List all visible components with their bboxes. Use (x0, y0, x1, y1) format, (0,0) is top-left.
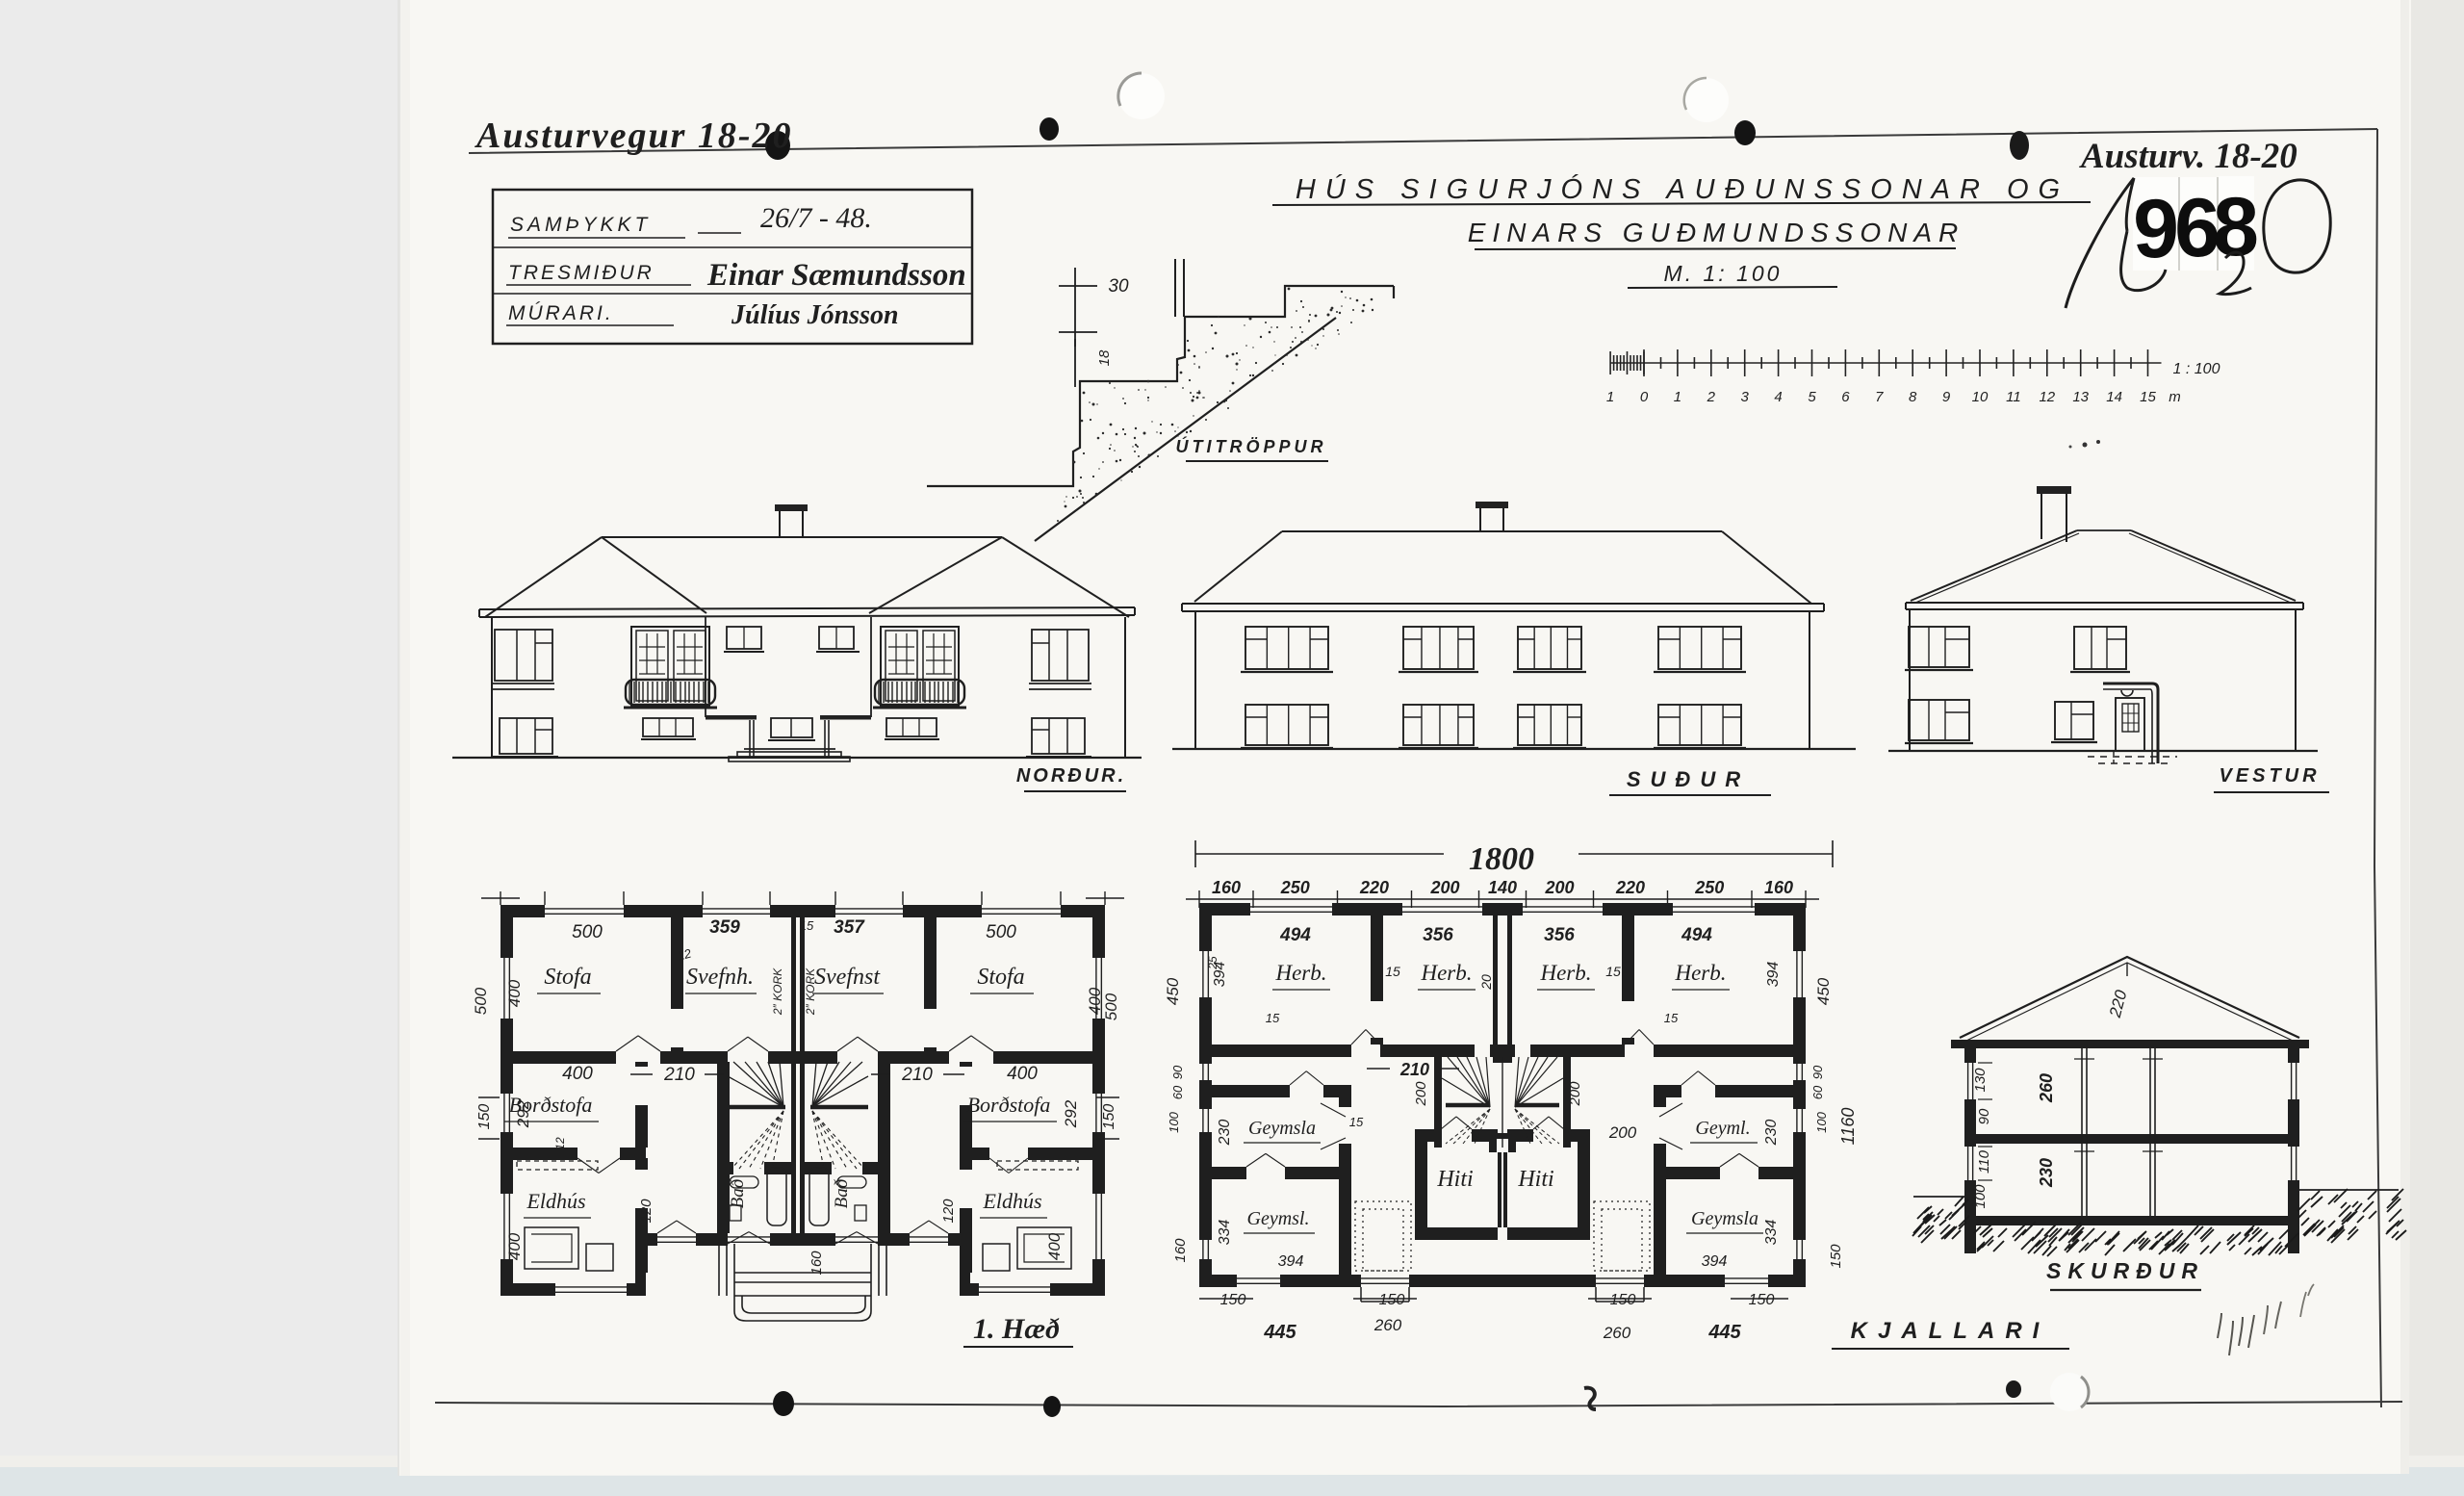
svg-text:ÚTITRÖPPUR: ÚTITRÖPPUR (1176, 436, 1327, 456)
svg-text:EINARS GUÐMUNDSSONAR: EINARS GUÐMUNDSSONAR (1468, 218, 1964, 247)
svg-text:400: 400 (1045, 1232, 1064, 1260)
svg-text:150: 150 (1101, 1104, 1117, 1130)
svg-text:Geyml.: Geyml. (1695, 1118, 1750, 1139)
svg-text:11: 11 (2006, 389, 2021, 405)
svg-text:Geymsla: Geymsla (1248, 1118, 1316, 1139)
svg-text:Herb.: Herb. (1420, 961, 1472, 985)
svg-text:5: 5 (1808, 389, 1816, 405)
svg-text:13: 13 (2072, 389, 2089, 405)
svg-text:Svefnh.: Svefnh. (686, 965, 754, 990)
svg-text:8: 8 (2213, 181, 2259, 273)
svg-text:210: 210 (901, 1065, 933, 1085)
svg-text:150: 150 (1610, 1292, 1636, 1308)
svg-text:VESTUR: VESTUR (2219, 765, 2320, 787)
svg-text:m: m (2169, 389, 2181, 405)
svg-text:150: 150 (1379, 1292, 1405, 1308)
svg-text:160: 160 (1764, 878, 1793, 897)
svg-text:100: 100 (1972, 1184, 1989, 1209)
svg-text:1. Hæð: 1. Hæð (973, 1313, 1060, 1345)
svg-text:200: 200 (1608, 1123, 1637, 1142)
svg-text:Stofa: Stofa (544, 965, 591, 990)
svg-text:15: 15 (2140, 389, 2156, 405)
svg-text:2: 2 (1707, 389, 1716, 405)
svg-text:Svefnst: Svefnst (814, 965, 881, 990)
svg-text:120: 120 (638, 1199, 654, 1224)
svg-text:250: 250 (1280, 878, 1310, 897)
svg-text:160: 160 (808, 1251, 825, 1276)
svg-text:356: 356 (1544, 925, 1575, 945)
svg-text:210: 210 (1399, 1060, 1429, 1079)
svg-text:M. 1: 100: M. 1: 100 (1664, 261, 1783, 286)
svg-text:2″ KORK: 2″ KORK (771, 967, 784, 1016)
svg-text:260: 260 (1373, 1316, 1402, 1334)
svg-text:Eldhús: Eldhús (526, 1189, 585, 1213)
svg-text:12: 12 (553, 1137, 567, 1150)
svg-text:400: 400 (1007, 1064, 1038, 1084)
svg-text:494: 494 (1681, 925, 1712, 945)
svg-text:500: 500 (1102, 993, 1120, 1020)
svg-text:357: 357 (834, 917, 865, 938)
svg-text:400: 400 (505, 1232, 524, 1260)
svg-text:12: 12 (2039, 389, 2055, 405)
svg-text:260: 260 (2037, 1073, 2056, 1103)
svg-text:150: 150 (1749, 1292, 1775, 1308)
svg-text:1160: 1160 (1838, 1108, 1858, 1146)
svg-text:Hiti: Hiti (1436, 1167, 1473, 1192)
svg-text:Einar Sæmundsson: Einar Sæmundsson (706, 258, 966, 293)
svg-text:356: 356 (1423, 925, 1453, 945)
svg-text:494: 494 (1279, 925, 1311, 945)
svg-text:500: 500 (472, 987, 490, 1015)
svg-text:140: 140 (1488, 878, 1517, 897)
svg-text:SAMÞYKKT: SAMÞYKKT (510, 214, 651, 236)
svg-text:200: 200 (1567, 1081, 1583, 1107)
svg-text:210: 210 (663, 1065, 695, 1085)
svg-text:Hiti: Hiti (1517, 1167, 1553, 1192)
svg-text:230: 230 (1763, 1120, 1780, 1147)
svg-text:15: 15 (1349, 1115, 1364, 1129)
svg-text:445: 445 (1707, 1322, 1741, 1343)
svg-text:334: 334 (1763, 1220, 1780, 1246)
svg-text:120: 120 (940, 1199, 957, 1224)
svg-text:150: 150 (476, 1104, 493, 1130)
svg-text:450: 450 (1164, 977, 1182, 1005)
svg-text:15: 15 (1664, 1011, 1679, 1025)
svg-text:200: 200 (1413, 1081, 1429, 1107)
svg-text:130: 130 (1972, 1068, 1989, 1093)
svg-text:500: 500 (986, 922, 1016, 942)
svg-text:500: 500 (572, 922, 603, 942)
svg-text:1: 1 (1674, 389, 1681, 405)
svg-text:Bað: Bað (832, 1178, 852, 1208)
svg-text:9: 9 (1942, 389, 1951, 405)
svg-text:1: 1 (1606, 389, 1614, 405)
svg-text:MÚRARI.: MÚRARI. (508, 302, 614, 324)
svg-text:18: 18 (1096, 349, 1113, 366)
svg-text:400: 400 (505, 979, 524, 1007)
svg-text:250: 250 (1694, 878, 1724, 897)
svg-text:110: 110 (1976, 1149, 1992, 1174)
svg-text:Herb.: Herb. (1539, 961, 1591, 985)
svg-text:SKURÐUR: SKURÐUR (2046, 1258, 2204, 1283)
svg-text:15: 15 (1266, 1011, 1280, 1025)
svg-text:10: 10 (1972, 389, 1989, 405)
svg-text:Geymsla: Geymsla (1691, 1208, 1758, 1229)
svg-text:394: 394 (1278, 1253, 1304, 1270)
svg-text:150: 150 (1220, 1292, 1246, 1308)
svg-text:14: 14 (2106, 389, 2122, 405)
svg-text:160: 160 (1172, 1238, 1189, 1263)
svg-text:60: 60 (1170, 1085, 1185, 1099)
svg-text:Borðstofa: Borðstofa (967, 1093, 1051, 1117)
svg-text:334: 334 (1217, 1220, 1233, 1246)
svg-text:394: 394 (1765, 962, 1782, 988)
svg-text:Borðstofa: Borðstofa (509, 1093, 593, 1117)
svg-text:160: 160 (1212, 878, 1241, 897)
svg-text:292: 292 (1062, 1099, 1080, 1128)
svg-text:15: 15 (1385, 964, 1400, 979)
svg-text:26/7 - 48.: 26/7 - 48. (760, 202, 872, 234)
svg-text:230: 230 (1217, 1120, 1233, 1147)
svg-text:7: 7 (1875, 389, 1884, 405)
svg-text:0: 0 (1640, 389, 1649, 405)
svg-text:6: 6 (1841, 389, 1850, 405)
svg-text:Geymsl.: Geymsl. (1247, 1208, 1310, 1229)
svg-text:90: 90 (1170, 1065, 1185, 1079)
svg-text:20: 20 (1478, 974, 1494, 991)
svg-text:KJALLARI: KJALLARI (1851, 1318, 2050, 1344)
svg-text:Eldhús: Eldhús (982, 1189, 1041, 1213)
svg-text:100: 100 (1167, 1111, 1181, 1132)
svg-text:1800: 1800 (1469, 841, 1534, 877)
svg-text:Austurv. 18-20: Austurv. 18-20 (2079, 137, 2297, 176)
svg-text:Herb.: Herb. (1674, 961, 1726, 985)
svg-text:NORÐUR.: NORÐUR. (1016, 765, 1126, 787)
svg-text:200: 200 (1429, 878, 1459, 897)
svg-text:25: 25 (1206, 956, 1219, 970)
svg-text:100: 100 (1814, 1111, 1829, 1132)
svg-text:260: 260 (1603, 1324, 1631, 1342)
svg-text:60: 60 (1810, 1085, 1825, 1099)
svg-text:Stofa: Stofa (977, 965, 1024, 990)
svg-text:394: 394 (1702, 1253, 1728, 1270)
svg-text:400: 400 (562, 1064, 593, 1084)
svg-text:15: 15 (800, 918, 814, 933)
svg-text:220: 220 (1359, 878, 1389, 897)
svg-text:Bað: Bað (728, 1178, 748, 1208)
svg-text:3: 3 (1741, 389, 1750, 405)
svg-text:1 : 100: 1 : 100 (2173, 361, 2220, 377)
svg-text:150: 150 (1828, 1244, 1844, 1269)
svg-text:220: 220 (1615, 878, 1645, 897)
svg-text:445: 445 (1263, 1322, 1296, 1343)
svg-text:90: 90 (1810, 1065, 1825, 1079)
svg-text:90: 90 (1976, 1108, 1992, 1124)
svg-text:8: 8 (1909, 389, 1917, 405)
svg-text:230: 230 (2037, 1158, 2056, 1188)
svg-text:4: 4 (1774, 389, 1782, 405)
svg-text:200: 200 (1544, 878, 1574, 897)
svg-text:HÚS SIGURJÓNS AUÐUNSSONAR OG: HÚS SIGURJÓNS AUÐUNSSONAR OG (1296, 173, 2069, 205)
svg-text:15: 15 (1605, 964, 1621, 979)
svg-text:SUÐUR: SUÐUR (1627, 767, 1750, 791)
svg-text:9: 9 (2133, 183, 2179, 275)
svg-text:30: 30 (1108, 276, 1129, 297)
svg-text:TRESMIÐUR: TRESMIÐUR (508, 262, 654, 284)
svg-text:Austurvegur 18-20: Austurvegur 18-20 (475, 116, 793, 156)
svg-text:450: 450 (1814, 977, 1833, 1005)
svg-text:Júlíus Jónsson: Júlíus Jónsson (731, 300, 899, 330)
svg-text:359: 359 (709, 917, 740, 938)
svg-text:Herb.: Herb. (1274, 961, 1326, 985)
